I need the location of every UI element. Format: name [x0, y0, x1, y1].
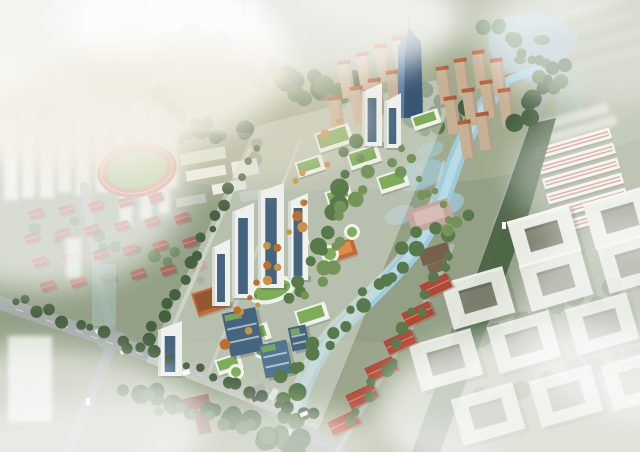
- aerial-masterplan-rendering: [0, 0, 640, 452]
- rendering-canvas: [0, 0, 640, 452]
- scene-layers: [0, 0, 640, 452]
- color-cast: [0, 0, 640, 452]
